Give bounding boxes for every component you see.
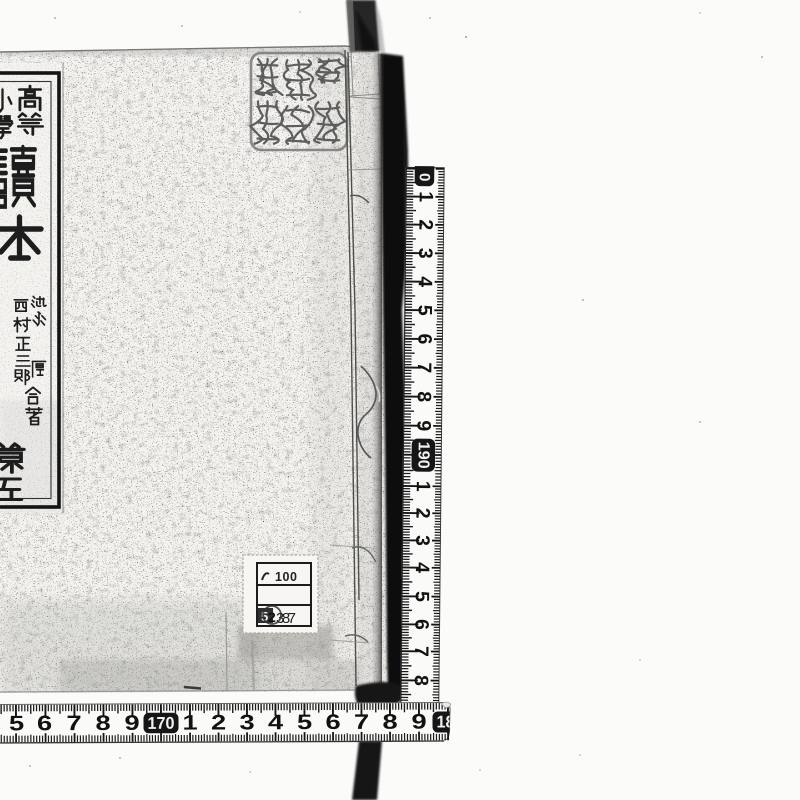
svg-text:100: 100 — [275, 570, 297, 584]
svg-text:6: 6 — [37, 712, 52, 735]
svg-text:1: 1 — [182, 711, 197, 734]
svg-text:3: 3 — [411, 535, 433, 546]
svg-text:7: 7 — [66, 712, 81, 735]
svg-text:8: 8 — [382, 711, 397, 734]
svg-text:8: 8 — [410, 675, 432, 686]
svg-text:9: 9 — [411, 710, 426, 733]
svg-text:9: 9 — [412, 420, 434, 431]
svg-text:3: 3 — [239, 711, 254, 734]
svg-text:2: 2 — [211, 711, 226, 734]
svg-text:3: 3 — [414, 248, 436, 259]
svg-text:9: 9 — [124, 712, 139, 735]
svg-text:190: 190 — [414, 442, 431, 469]
svg-text:7: 7 — [413, 362, 435, 373]
svg-text:0: 0 — [416, 173, 433, 182]
svg-text:5: 5 — [411, 591, 433, 602]
svg-text:2: 2 — [268, 609, 276, 625]
svg-text:7: 7 — [410, 646, 432, 657]
svg-text:1: 1 — [412, 481, 434, 492]
svg-text:2: 2 — [414, 219, 436, 230]
svg-text:8: 8 — [95, 712, 110, 735]
svg-text:4: 4 — [411, 562, 433, 573]
svg-text:5: 5 — [413, 305, 435, 316]
svg-text:6: 6 — [410, 619, 432, 630]
svg-text:8: 8 — [413, 391, 435, 402]
svg-text:387: 387 — [276, 610, 296, 627]
svg-text:4: 4 — [268, 711, 284, 734]
svg-text:170: 170 — [147, 714, 174, 733]
svg-text:2: 2 — [411, 508, 433, 519]
svg-text:5: 5 — [297, 711, 312, 734]
svg-text:6: 6 — [325, 711, 340, 734]
svg-text:4: 4 — [414, 276, 436, 287]
svg-text:7: 7 — [354, 711, 369, 734]
svg-text:6: 6 — [413, 333, 435, 344]
svg-text:5: 5 — [9, 712, 24, 735]
svg-text:1: 1 — [415, 191, 437, 202]
